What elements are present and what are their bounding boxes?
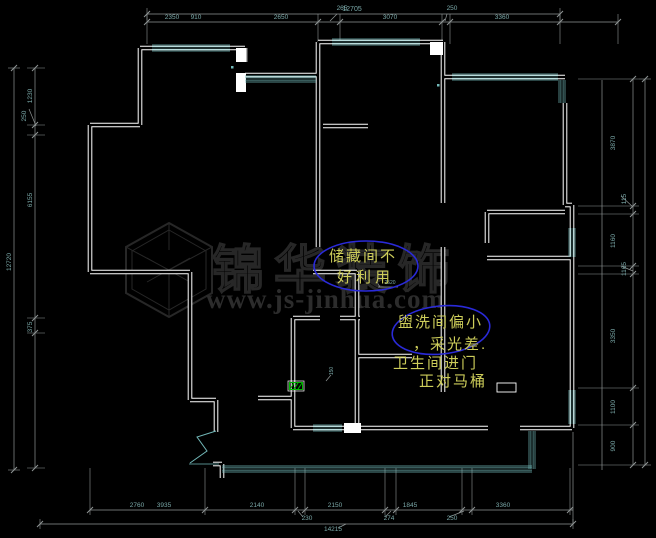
toilet-fixture <box>497 383 516 392</box>
meter-hatch <box>298 383 302 389</box>
dim-label: 250 <box>447 5 458 12</box>
dim-label: 900 <box>610 440 617 451</box>
annotation-storage-line1: 储藏间不 <box>329 245 397 266</box>
dim-label: 910 <box>191 14 202 21</box>
dim-label: 375 <box>27 321 34 332</box>
annotation-washroom-line2: ，采光差. <box>413 333 487 354</box>
dim-label: 2760 <box>130 502 145 509</box>
dim-leader <box>330 14 337 21</box>
dim-label: 14215 <box>324 526 342 533</box>
dim-label: 2650 <box>274 14 289 21</box>
dim-label: 1100 <box>610 400 617 414</box>
dim-label: 3360 <box>495 14 510 21</box>
dim-label: 12720 <box>6 253 13 271</box>
wall-pillar <box>236 73 246 92</box>
entry-door <box>190 431 216 463</box>
wall-pillar <box>236 48 246 62</box>
dim-label: 3935 <box>157 502 172 509</box>
dim-label: 230 <box>302 515 313 522</box>
dim-label: 6155 <box>27 192 34 207</box>
annotation-washroom-line1: 盥洗间偏小 <box>398 311 483 332</box>
wall-pillar <box>430 42 443 55</box>
marker-dot <box>437 84 440 87</box>
wall-pillar <box>344 423 361 433</box>
marker-dot <box>231 66 234 69</box>
dim-label: 250 <box>447 515 458 522</box>
dim-label: 115 <box>621 193 628 204</box>
dim-label: 2140 <box>250 502 265 509</box>
dim-label: 1160 <box>610 234 617 248</box>
dim-label: 2350 <box>165 14 180 21</box>
annotation-storage-line2: 好利用 <box>337 266 394 287</box>
dim-label: 265 <box>337 5 348 12</box>
dim-label: 1230 <box>27 88 34 103</box>
dim-label: 3350 <box>610 328 617 343</box>
dim-label: 3870 <box>610 135 617 150</box>
dim-leader <box>445 14 447 21</box>
dim-label: 150 <box>329 367 335 376</box>
cad-floorplan-viewer: 锦华装饰 www.js-jinhua.com 12705235091026502… <box>0 0 656 538</box>
dim-label: 1165 <box>621 262 628 276</box>
dim-label: 274 <box>384 515 395 522</box>
annotation-washroom-line4: 正对马桶 <box>419 370 487 391</box>
floorplan-canvas: 1270523509102650265307025033602760393521… <box>0 0 656 538</box>
dim-label: 3360 <box>496 502 511 509</box>
dim-label: 250 <box>21 110 28 121</box>
dim-label: 2150 <box>328 502 343 509</box>
dim-label: 3070 <box>383 14 398 21</box>
dim-label: 1845 <box>403 502 418 509</box>
